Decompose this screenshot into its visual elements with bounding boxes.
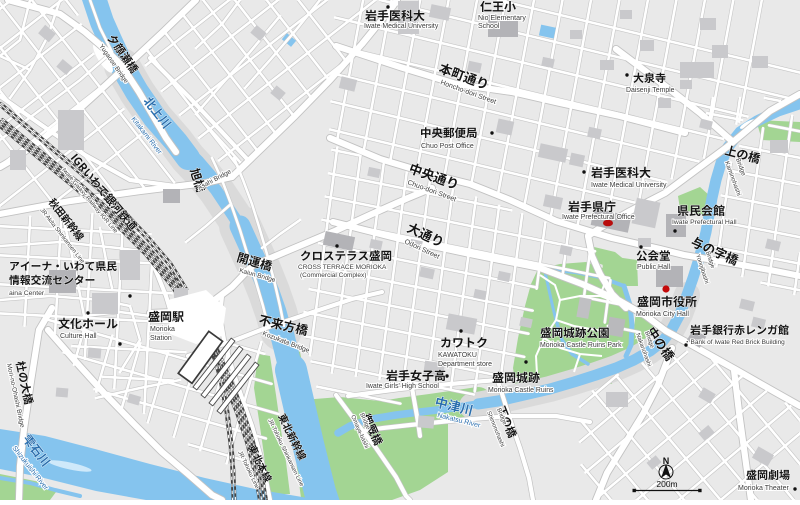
svg-text:Iwate Girls' High School: Iwate Girls' High School xyxy=(366,383,439,390)
svg-text:Iwate Prefectural Hall: Iwate Prefectural Hall xyxy=(672,219,737,226)
svg-text:Iwate Medical University: Iwate Medical University xyxy=(591,182,667,189)
svg-text:Morioka: Morioka xyxy=(150,326,175,333)
svg-text:CROSS TERRACE MORIOKA: CROSS TERRACE MORIOKA xyxy=(298,264,387,271)
svg-text:Daisenji Temple: Daisenji Temple xyxy=(626,87,675,94)
svg-text:Station: Station xyxy=(150,335,172,342)
svg-text:Culture Hall: Culture Hall xyxy=(60,333,97,340)
svg-text:Morioka Castle Ruins: Morioka Castle Ruins xyxy=(488,387,554,394)
svg-text:Morioka Theater: Morioka Theater xyxy=(738,485,790,492)
svg-text:Public Hall: Public Hall xyxy=(637,264,671,271)
svg-text:KAWATOKU: KAWATOKU xyxy=(438,352,477,359)
svg-text:・Bank of Iwate Red Brick Build: ・Bank of Iwate Red Brick Building xyxy=(684,339,785,346)
svg-text:Department store: Department store xyxy=(438,361,492,368)
svg-text:Morioka City Hall: Morioka City Hall xyxy=(636,311,689,318)
svg-text:Iwate Prefectural Office: Iwate Prefectural Office xyxy=(562,214,635,221)
svg-text:(Commercial Complex): (Commercial Complex) xyxy=(300,272,366,279)
svg-text:Chuo Post Office: Chuo Post Office xyxy=(421,143,474,150)
svg-text:aina Center: aina Center xyxy=(9,290,45,297)
svg-text:Iwate Medical University: Iwate Medical University xyxy=(364,23,439,30)
svg-text:School: School xyxy=(478,23,500,30)
svg-text:Morioka Castle Ruins Park: Morioka Castle Ruins Park xyxy=(540,342,622,349)
svg-text:Nio Elementary: Nio Elementary xyxy=(478,15,526,22)
svg-text:200m: 200m xyxy=(656,479,677,489)
